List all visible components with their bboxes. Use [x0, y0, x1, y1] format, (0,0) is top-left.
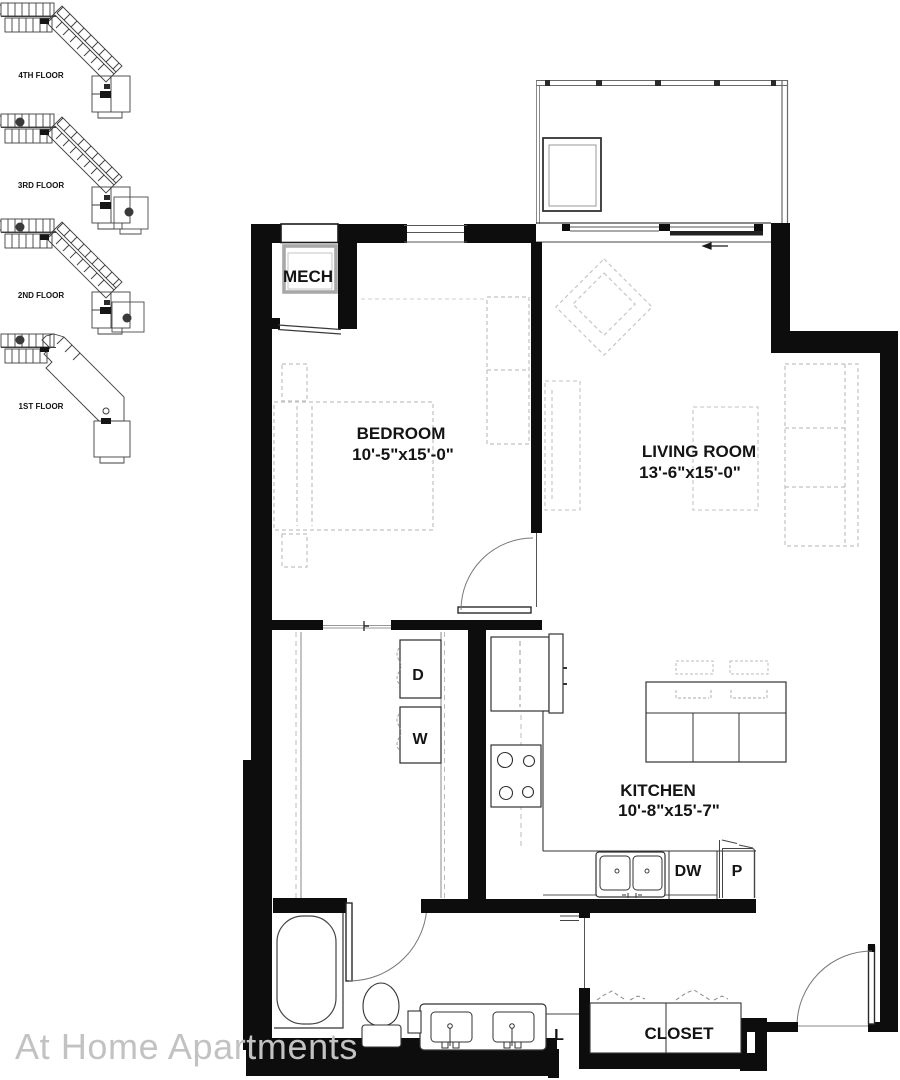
svg-text:10'-8"x15'-7": 10'-8"x15'-7" [618, 801, 720, 820]
svg-text:MECH: MECH [283, 267, 333, 286]
svg-text:3RD FLOOR: 3RD FLOOR [18, 181, 64, 190]
svg-text:KITCHEN: KITCHEN [620, 781, 696, 800]
svg-text:LIVING ROOM: LIVING ROOM [642, 442, 756, 461]
svg-text:P: P [732, 863, 743, 880]
svg-text:BEDROOM: BEDROOM [357, 424, 446, 443]
svg-text:13'-6"x15'-0": 13'-6"x15'-0" [639, 463, 741, 482]
svg-text:1ST FLOOR: 1ST FLOOR [19, 402, 64, 411]
svg-text:DW: DW [675, 863, 703, 880]
svg-text:2ND FLOOR: 2ND FLOOR [18, 291, 64, 300]
svg-text:At Home Apartments: At Home Apartments [15, 1026, 358, 1067]
svg-text:CLOSET: CLOSET [645, 1024, 715, 1043]
svg-text:10'-5"x15'-0": 10'-5"x15'-0" [352, 445, 454, 464]
svg-text:4TH FLOOR: 4TH FLOOR [18, 71, 64, 80]
svg-text:L: L [554, 1027, 564, 1044]
svg-text:D: D [412, 667, 424, 684]
svg-text:W: W [412, 731, 428, 748]
